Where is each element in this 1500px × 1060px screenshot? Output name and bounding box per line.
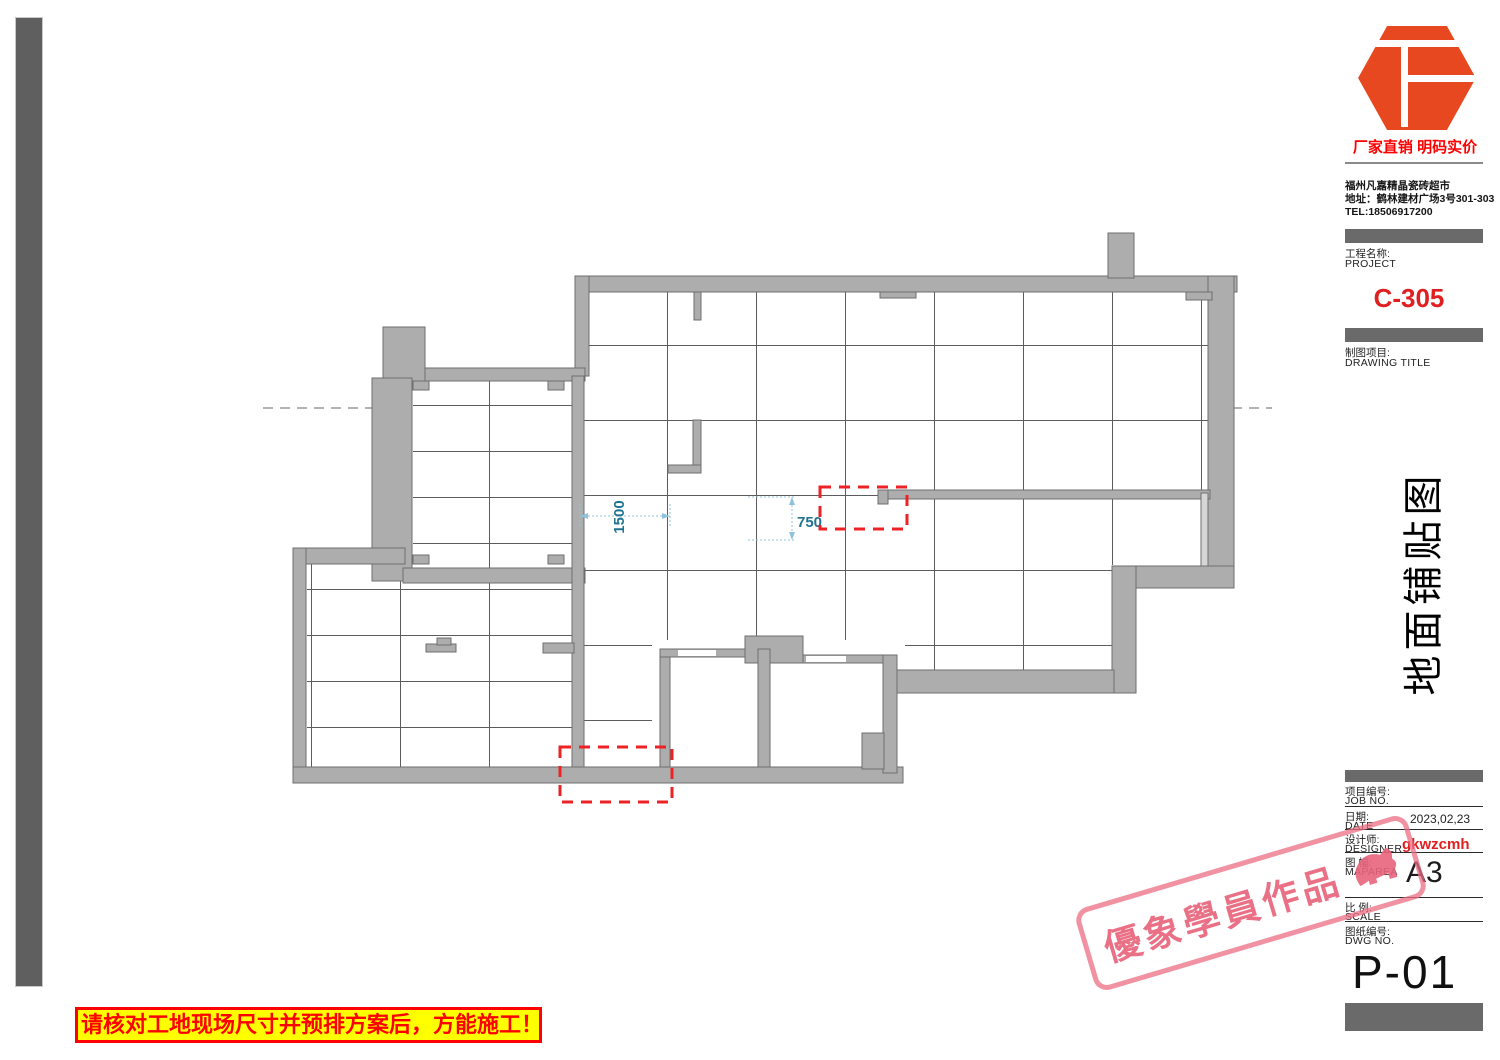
company-info: 福州凡嘉精晶瓷砖超市 地址：鹤林建材广场3号301-303 TEL:185069… — [1345, 180, 1495, 219]
section-bar — [1345, 328, 1483, 342]
sheet-number: P-01 — [1352, 945, 1457, 999]
brand-slogan: 厂家直销 明码实价 — [1345, 136, 1485, 157]
dim-1500-label: 1500 — [611, 500, 628, 533]
project-label-en: PROJECT — [1345, 258, 1396, 270]
dim-750-label: 750 — [797, 514, 822, 531]
section-bar — [1345, 229, 1483, 243]
company-address: 地址：鹤林建材广场3号301-303 — [1345, 193, 1495, 206]
site-warning-banner: 请核对工地现场尺寸并预排方案后，方能施工！ — [75, 1007, 542, 1043]
divider — [1345, 162, 1483, 164]
section-bar — [1345, 770, 1483, 782]
row-divider — [1345, 806, 1483, 807]
drawing-title-label-en: DRAWING TITLE — [1345, 357, 1431, 369]
company-name: 福州凡嘉精晶瓷砖超市 — [1345, 180, 1495, 193]
company-logo — [1358, 22, 1476, 134]
row-divider — [1345, 921, 1483, 922]
sheet-title-vertical: 地面铺贴图 — [1391, 471, 1449, 696]
project-code: C-305 — [1345, 283, 1473, 314]
elephant-icon — [1342, 839, 1404, 894]
drawing-sheet: { "branding": { "slogan": "厂家直销 明码实价", "… — [0, 0, 1500, 1060]
section-bar — [1345, 1003, 1483, 1031]
company-tel: TEL:18506917200 — [1345, 206, 1495, 219]
date-value: 2023,02,23 — [1410, 812, 1470, 826]
